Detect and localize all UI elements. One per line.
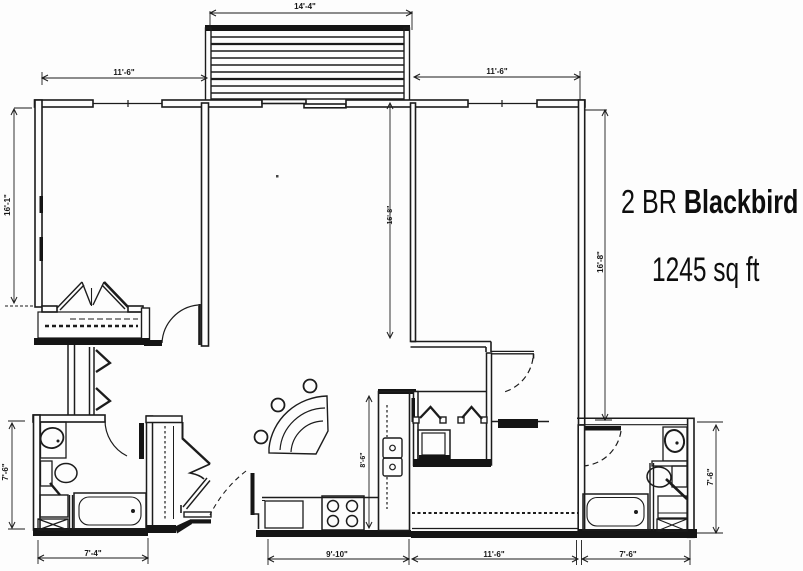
svg-text:7'-6": 7'-6" bbox=[1, 463, 10, 480]
svg-text:8'-6": 8'-6" bbox=[360, 452, 367, 467]
svg-text:7'-4": 7'-4" bbox=[84, 549, 101, 558]
svg-text:16'-1": 16'-1" bbox=[3, 194, 12, 216]
svg-text:2 BR Blackbird: 2 BR Blackbird bbox=[621, 184, 798, 221]
svg-text:11'-6": 11'-6" bbox=[483, 550, 504, 559]
svg-text:11'-6": 11'-6" bbox=[113, 68, 134, 77]
svg-text:14'-4": 14'-4" bbox=[294, 2, 316, 11]
svg-text:16'-8": 16'-8" bbox=[387, 206, 394, 225]
svg-text:7'-6": 7'-6" bbox=[706, 468, 715, 485]
svg-text:7'-6": 7'-6" bbox=[619, 550, 636, 559]
svg-text:9'-10": 9'-10" bbox=[326, 550, 348, 559]
svg-text:11'-6": 11'-6" bbox=[486, 67, 507, 76]
svg-text:16'-8": 16'-8" bbox=[596, 251, 605, 273]
svg-text:1245 sq ft: 1245 sq ft bbox=[652, 251, 760, 289]
